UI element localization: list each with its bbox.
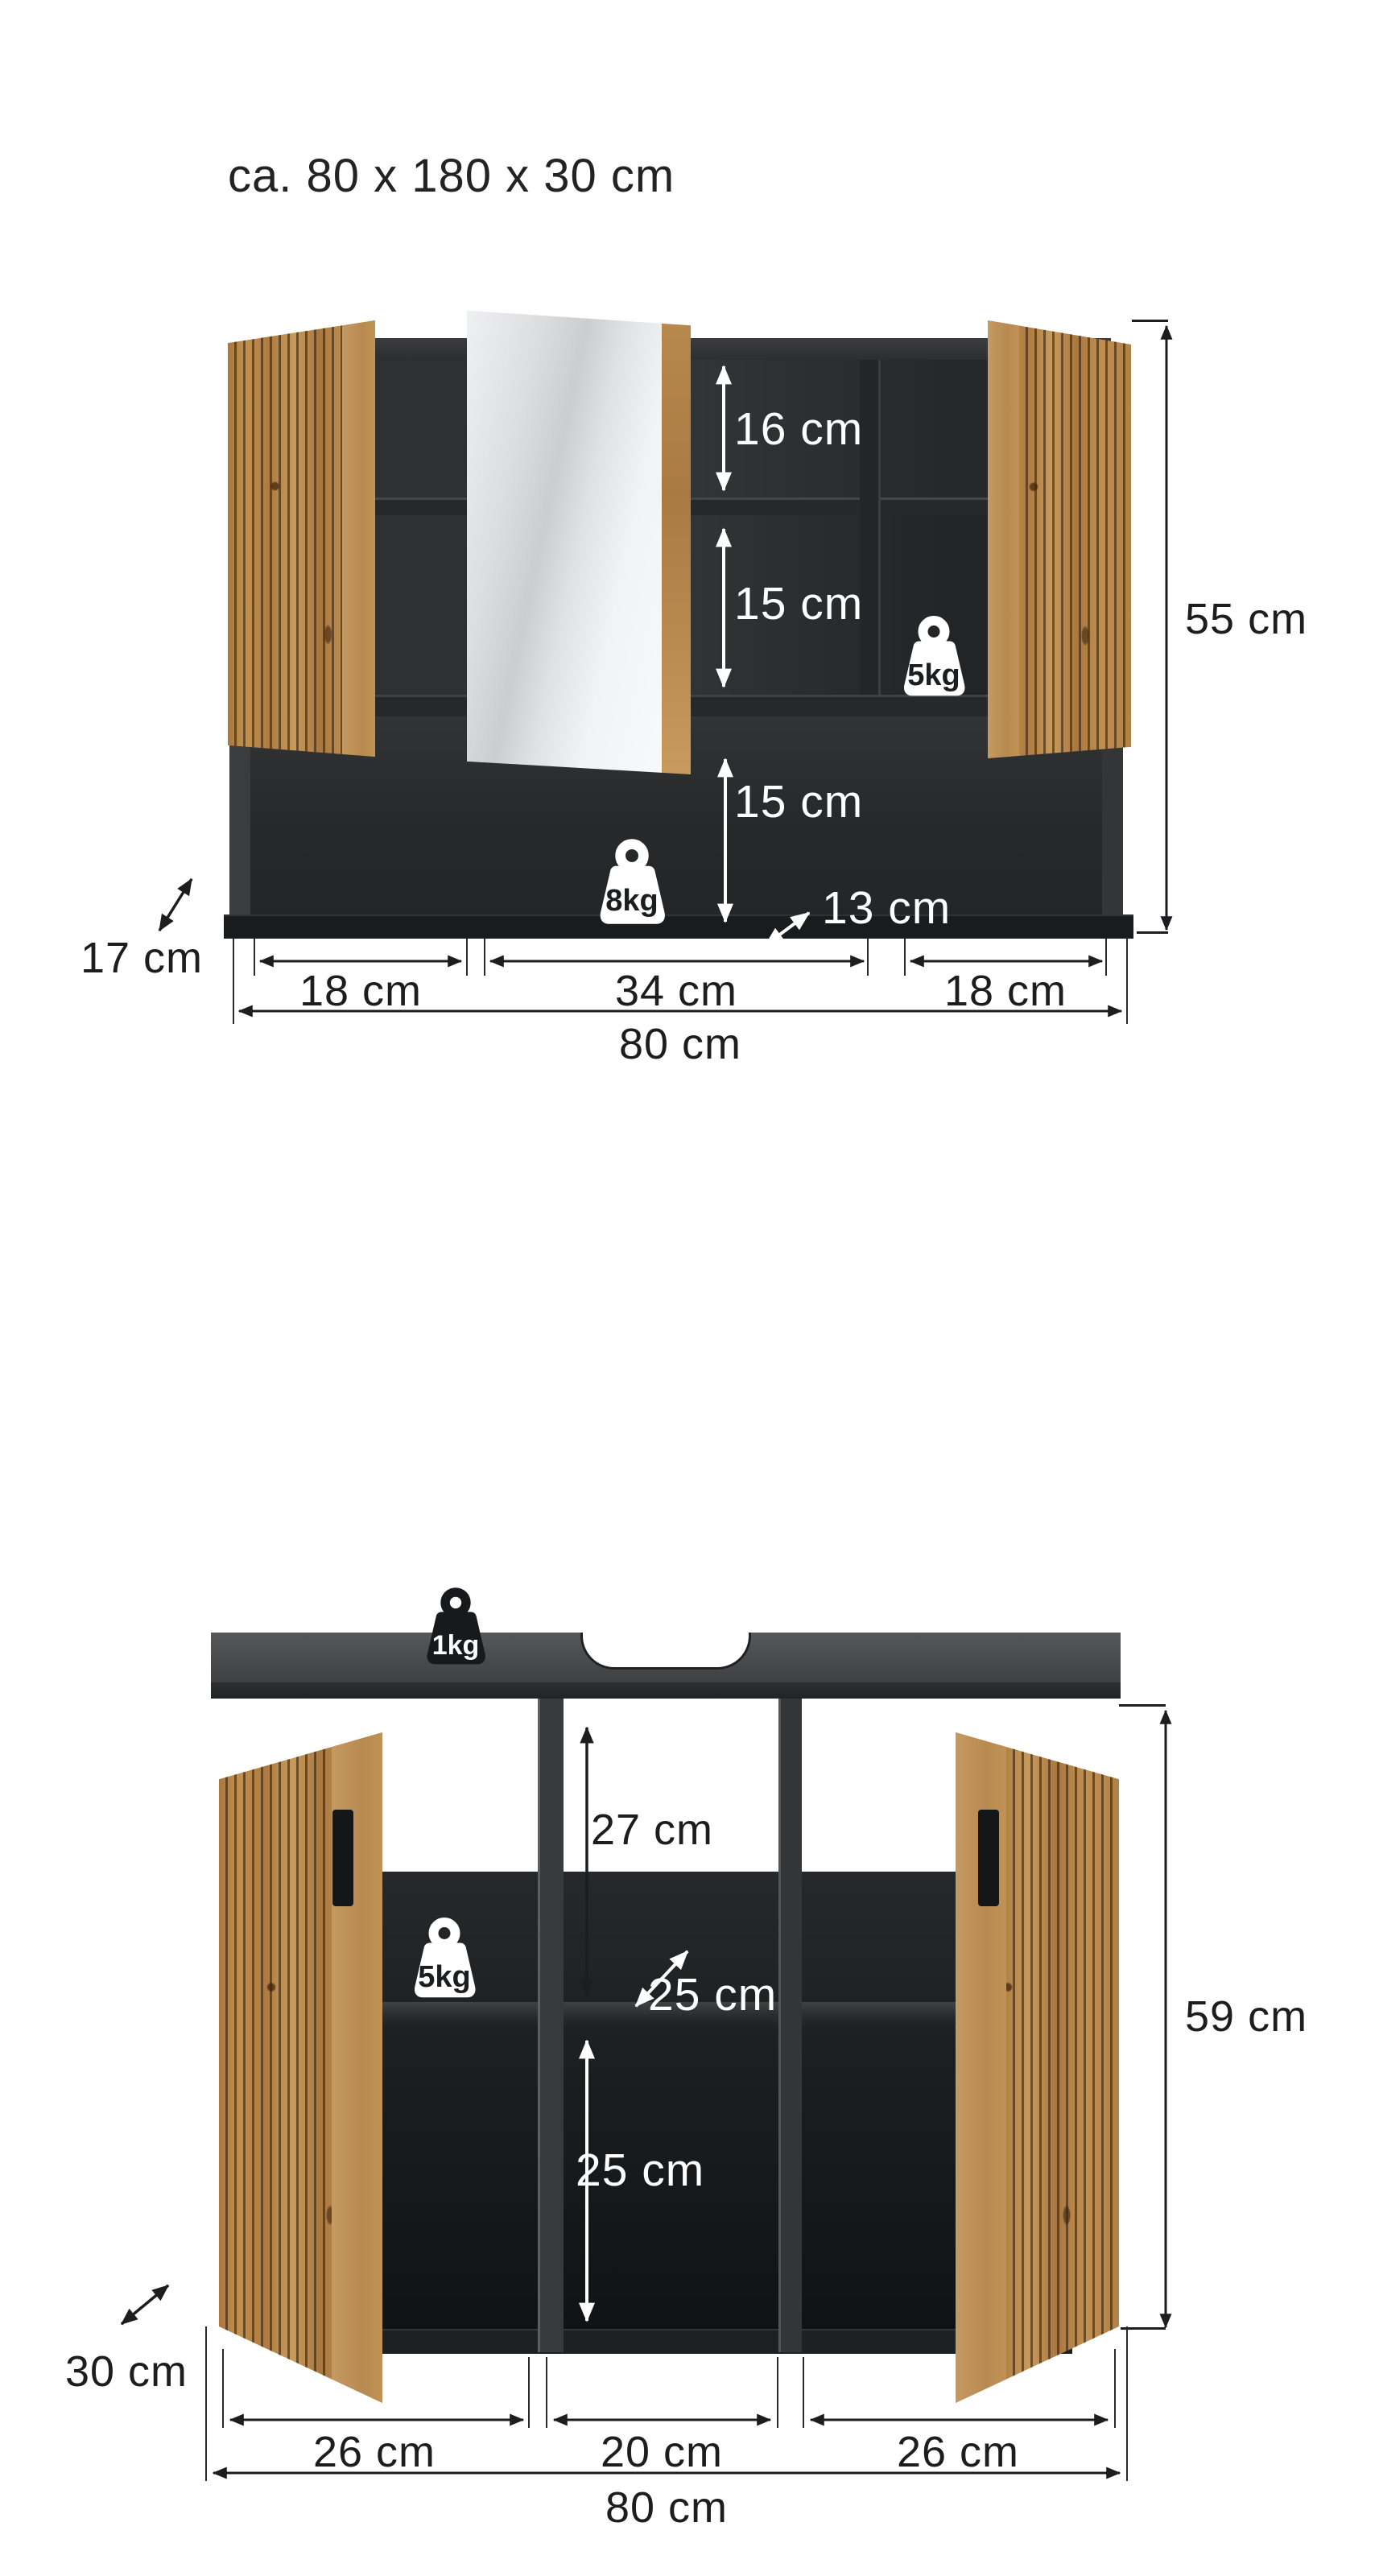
weight-5kg-sink-shelf: 5kg: [406, 1918, 483, 2002]
dim-line-34cm: [485, 956, 869, 966]
dim-line-18cm-left: [254, 956, 467, 966]
sink-pipe-cutout: [580, 1633, 751, 1670]
extension-line: [222, 2349, 224, 2428]
mirror-door: [467, 309, 691, 774]
sink-right-door-slats: [1006, 1732, 1119, 2403]
label-27cm: 27 cm: [572, 1808, 733, 1851]
dim-line-26cm-right: [805, 2415, 1113, 2425]
dim-line-26cm-left: [225, 2415, 529, 2425]
bottom-rail: [280, 2329, 1072, 2354]
right-door-slats: [1019, 320, 1131, 758]
label-26cm-right: 26 cm: [877, 2430, 1038, 2474]
label-25cm-bottom: 25 cm: [576, 2148, 704, 2194]
label-55cm: 55 cm: [1185, 597, 1307, 641]
dim-line-55cm: [1162, 320, 1171, 936]
left-door-slats: [228, 320, 342, 757]
extension-line: [1126, 2326, 1128, 2481]
dim-line-80cm-top: [233, 1006, 1127, 1016]
base-board: [224, 914, 1133, 939]
extension-line: [803, 2357, 804, 2428]
arrow-13cm-depth: [756, 903, 820, 955]
arrow-15cm-middle: [720, 523, 728, 692]
arrow-30cm-depth: [112, 2276, 180, 2334]
sink-top-panel: [211, 1633, 1121, 1699]
arrow-15cm-bottom: [721, 753, 729, 927]
mirror-glass: [467, 309, 662, 774]
extension-line: [205, 2326, 207, 2481]
label-15cm-middle: 15 cm: [734, 581, 863, 627]
weight-8kg-label: 8kg: [591, 885, 673, 916]
page-title: ca. 80 x 180 x 30 cm: [228, 149, 675, 203]
weight-8kg-bottom: 8kg: [591, 839, 673, 929]
label-80cm-top: 80 cm: [600, 1022, 761, 1066]
weight-5kg-shelf: 5kg: [895, 616, 972, 700]
label-30cm: 30 cm: [46, 2350, 207, 2393]
extension-line: [1114, 2349, 1116, 2428]
middle-compartment-left: [375, 515, 467, 695]
dim-line-80cm-bottom: [208, 2468, 1125, 2478]
dim-line-18cm-right: [905, 956, 1108, 966]
arrow-27cm: [583, 1721, 591, 2001]
weight-1kg-top: 1kg: [419, 1587, 493, 1669]
label-80cm-bottom: 80 cm: [586, 2486, 747, 2529]
label-15cm-bottom: 15 cm: [734, 779, 863, 825]
arrow-16cm: [720, 361, 728, 496]
left-door: [228, 320, 375, 757]
frame-post-left: [538, 1699, 564, 2352]
extension-line: [546, 2357, 547, 2428]
frame-post-right: [778, 1699, 802, 2352]
weight-5kg-sink-label: 5kg: [406, 1962, 483, 1992]
label-16cm: 16 cm: [734, 407, 863, 452]
label-20cm: 20 cm: [581, 2430, 742, 2474]
right-door-edge: [988, 320, 1019, 758]
product-dimension-sheet: ca. 80 x 180 x 30 cm: [0, 0, 1379, 2576]
arrow-17cm-depth: [150, 869, 206, 941]
label-26cm-left: 26 cm: [294, 2430, 455, 2474]
upper-compartment-left: [375, 360, 467, 497]
label-59cm: 59 cm: [1185, 1995, 1307, 2038]
weight-1kg-label: 1kg: [419, 1632, 493, 1659]
tick-59-top: [1119, 1704, 1166, 1707]
dim-line-59cm: [1161, 1704, 1170, 2334]
sink-left-door: [219, 1732, 382, 2403]
dim-line-20cm: [548, 2415, 776, 2425]
right-door: [988, 320, 1131, 758]
mirror-door-wood-edge: [662, 309, 691, 774]
left-door-edge: [342, 320, 375, 757]
label-17cm: 17 cm: [61, 936, 222, 980]
label-13cm: 13 cm: [822, 885, 951, 931]
weight-5kg-label: 5kg: [895, 660, 972, 691]
extension-line: [777, 2357, 778, 2428]
right-door-handle: [978, 1810, 999, 1906]
sink-top-panel-edge: [211, 1682, 1121, 1699]
left-door-handle: [332, 1810, 353, 1906]
sink-left-door-slats: [219, 1732, 332, 2403]
label-25cm-depth: 25 cm: [648, 1972, 777, 2018]
